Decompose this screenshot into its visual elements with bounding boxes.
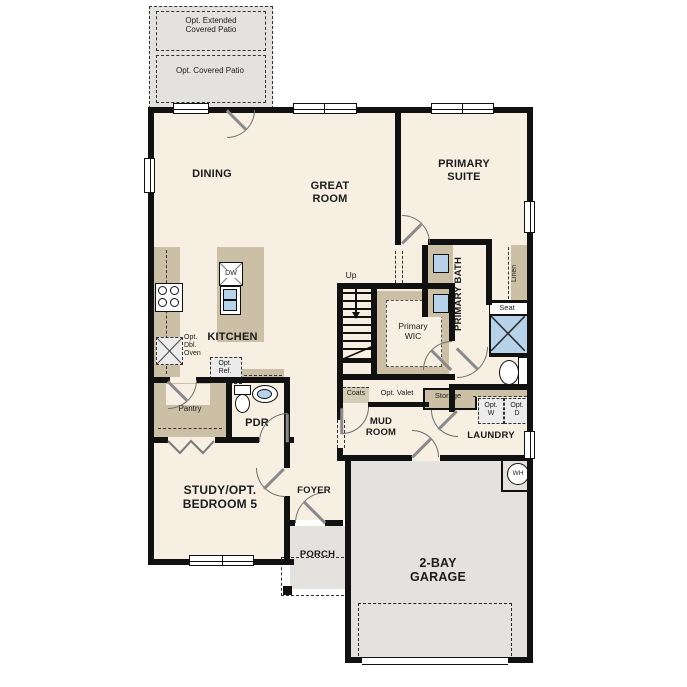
wall [284, 520, 295, 526]
wall [337, 283, 455, 289]
door-leaf [286, 414, 289, 442]
window-icon [462, 103, 494, 114]
vanity-sink-icon [433, 294, 449, 313]
storage-label: Storage [425, 392, 471, 401]
island-sink-icon [220, 286, 241, 315]
stair-tread [343, 300, 371, 302]
opt-fridge-label: Opt. Ref. [216, 360, 234, 376]
stair-arrow-icon [352, 312, 360, 319]
wall [337, 289, 343, 420]
wall [371, 289, 377, 380]
window-icon [524, 201, 535, 233]
wall [337, 448, 343, 461]
bath-toilet-bowl-icon [499, 360, 519, 385]
window-icon [189, 555, 223, 566]
water-heater-label: WH [508, 470, 528, 477]
wall [486, 239, 492, 305]
garage-apron-outline [358, 603, 512, 661]
linen-rod-line [508, 247, 510, 299]
garage-label: 2-BAY GARAGE [403, 556, 473, 585]
window-icon [222, 555, 254, 566]
window-icon [144, 158, 155, 193]
stair-tread [343, 340, 371, 342]
room-label-great-room: GREAT ROOM [300, 180, 360, 205]
mud-room-label: MUD ROOM [360, 417, 402, 439]
stair-tread [343, 308, 371, 310]
wall [422, 245, 428, 317]
window-icon [324, 103, 357, 114]
wall [449, 390, 455, 412]
shower-icon [489, 314, 531, 357]
wall [337, 374, 455, 380]
opt-washer-icon: Opt. W [478, 398, 504, 424]
wall [368, 402, 429, 407]
water-heater-icon: WH [507, 463, 529, 485]
patio-covered-label: Opt. Covered Patio [160, 66, 260, 75]
porch-column [283, 586, 292, 595]
opt-dryer-label: Opt. D [509, 402, 525, 418]
wall [226, 437, 259, 443]
burner-icon [158, 286, 167, 295]
coats-label: Coats [343, 390, 369, 398]
room-label-kitchen: KITCHEN [200, 331, 265, 344]
pdr-sink-basin-icon [257, 389, 272, 399]
wall [148, 437, 168, 443]
dishwasher-icon: DW [219, 262, 243, 286]
door-leaf [341, 408, 344, 434]
seat-label: Seat [490, 304, 524, 313]
stairs-up-label: Up [340, 271, 362, 281]
wall [440, 455, 533, 461]
vanity-sink-icon [433, 254, 449, 273]
wall [340, 455, 412, 461]
room-label-porch: PORCH [290, 550, 345, 561]
sink-bowl-icon [223, 300, 237, 311]
wall [449, 289, 455, 341]
burner-icon [170, 298, 179, 307]
stair-tread [343, 292, 371, 294]
wall [345, 461, 351, 663]
laundry-label: LAUNDRY [453, 431, 529, 442]
burner-icon [158, 298, 167, 307]
opt-valet-area: Opt. Valet [371, 387, 423, 403]
floor-plan: Opt. Extended Covered Patio Opt. Covered… [0, 0, 687, 687]
stair-tread [343, 332, 371, 334]
wall [527, 107, 533, 663]
opt-washer-label: Opt. W [483, 402, 499, 418]
stair-direction-line [355, 289, 357, 312]
wall [215, 437, 226, 443]
pdr-sink-icon [252, 385, 278, 403]
toilet-nook-wall [489, 353, 527, 355]
room-label-primary-suite: PRIMARY SUITE [428, 158, 500, 183]
room-label-study: STUDY/OPT. BEDROOM 5 [158, 484, 282, 512]
dishwasher-label: DW [222, 270, 240, 278]
sink-bowl-icon [223, 289, 237, 300]
garage-door-threshold [362, 657, 508, 665]
room-label-foyer: FOYER [288, 486, 340, 497]
opt-valet-label: Opt. Valet [371, 389, 423, 398]
stair-tread [343, 324, 371, 326]
coats-closet: Coats [343, 387, 369, 403]
window-icon [173, 103, 209, 114]
linen-label: Linen [511, 250, 525, 296]
wall [196, 377, 290, 383]
pdr-toilet-bowl-icon [235, 394, 250, 413]
bifold-closet-doors [167, 439, 215, 456]
cased-opening [395, 251, 403, 283]
patio-covered-outline [156, 55, 266, 103]
pantry-label: Pantry [154, 404, 226, 413]
room-label-dining: DINING [182, 168, 242, 181]
window-icon [431, 103, 463, 114]
opt-double-oven-icon [156, 337, 183, 365]
wic-label: Primary WIC [392, 322, 434, 342]
wall [505, 657, 533, 663]
wall [428, 239, 492, 245]
burner-icon [170, 286, 179, 295]
wall [449, 384, 527, 390]
patio-extended-label: Opt. Extended Covered Patio [176, 16, 246, 34]
closet-rod-line [158, 428, 222, 430]
wall [395, 107, 401, 245]
bath-label: PRIMARY BATH [454, 248, 480, 340]
window-icon [293, 103, 325, 114]
wall [226, 383, 232, 443]
window-icon [524, 431, 535, 459]
wall [325, 520, 343, 526]
stove-icon [155, 283, 183, 312]
